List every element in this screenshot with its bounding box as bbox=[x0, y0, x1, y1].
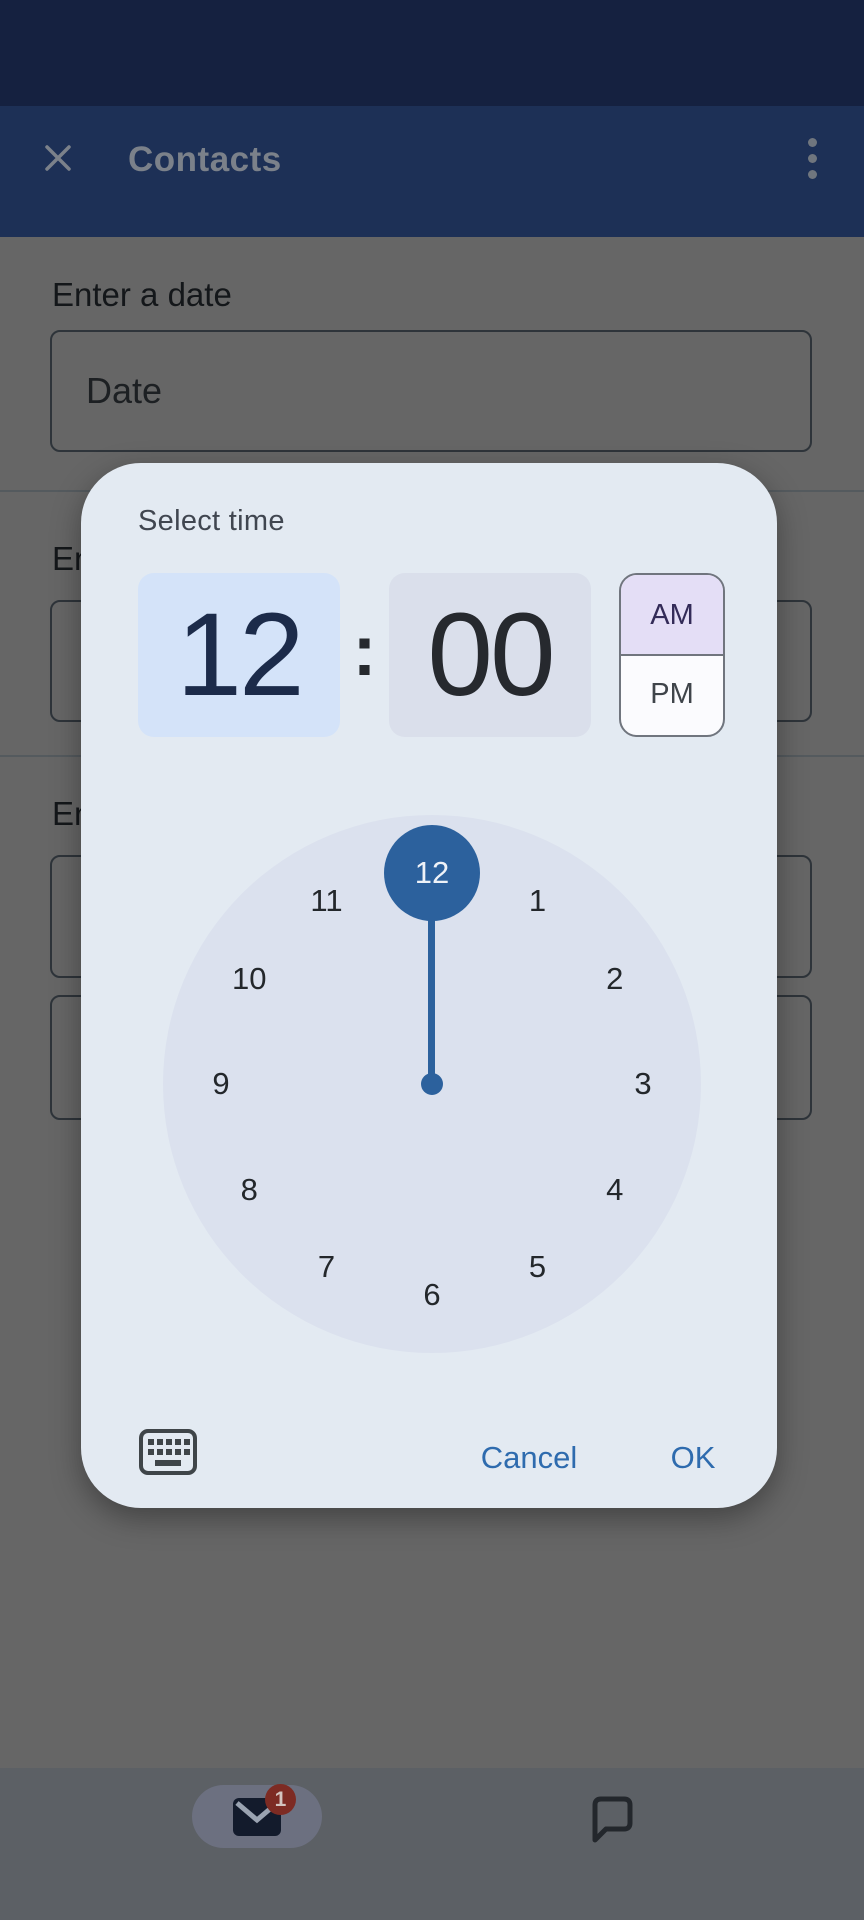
clock-number-10[interactable]: 10 bbox=[227, 957, 271, 1001]
clock-number-1[interactable]: 1 bbox=[516, 879, 560, 923]
clock-number-6[interactable]: 6 bbox=[410, 1273, 454, 1317]
clock-number-3[interactable]: 3 bbox=[621, 1062, 665, 1106]
hour-field[interactable]: 12 bbox=[138, 573, 340, 737]
clock-selected-hour[interactable]: 12 bbox=[384, 825, 480, 921]
ok-button[interactable]: OK bbox=[663, 1435, 723, 1481]
clock-number-9[interactable]: 9 bbox=[199, 1062, 243, 1106]
app-bar: Contacts bbox=[0, 106, 864, 237]
close-icon[interactable] bbox=[40, 142, 76, 178]
clock-hand bbox=[428, 919, 435, 1084]
clock-number-4[interactable]: 4 bbox=[593, 1168, 637, 1212]
clock-number-8[interactable]: 8 bbox=[227, 1168, 271, 1212]
bottom-nav: 1 bbox=[0, 1768, 864, 1920]
screen: Contacts Enter a date Date En En Select … bbox=[0, 0, 864, 1920]
minute-field[interactable]: 00 bbox=[389, 573, 591, 737]
keyboard-input-mode-button[interactable] bbox=[139, 1429, 205, 1487]
am-button[interactable]: AM bbox=[621, 575, 723, 656]
dialog-title: Select time bbox=[138, 505, 285, 538]
status-bar bbox=[0, 0, 864, 106]
clock-number-2[interactable]: 2 bbox=[593, 957, 637, 1001]
am-pm-toggle: AM PM bbox=[619, 573, 725, 737]
clock-number-5[interactable]: 5 bbox=[516, 1245, 560, 1289]
page-title: Contacts bbox=[128, 140, 282, 180]
more-options-icon[interactable] bbox=[800, 136, 824, 184]
chat-tab[interactable] bbox=[586, 1793, 636, 1848]
date-field-label: Enter a date bbox=[52, 276, 232, 314]
time-picker-dialog: Select time 12 : 00 AM PM 12 12123456789… bbox=[81, 463, 777, 1508]
time-separator: : bbox=[340, 573, 389, 737]
pm-button[interactable]: PM bbox=[621, 654, 723, 735]
clock-center-dot bbox=[421, 1073, 443, 1095]
date-input[interactable]: Date bbox=[50, 330, 812, 452]
notification-badge: 1 bbox=[265, 1784, 296, 1815]
clock-number-11[interactable]: 11 bbox=[305, 879, 349, 923]
cancel-button[interactable]: Cancel bbox=[469, 1435, 589, 1481]
date-input-placeholder: Date bbox=[86, 370, 162, 412]
clock-number-7[interactable]: 7 bbox=[305, 1245, 349, 1289]
clock-face[interactable]: 12 121234567891011 bbox=[163, 815, 701, 1353]
